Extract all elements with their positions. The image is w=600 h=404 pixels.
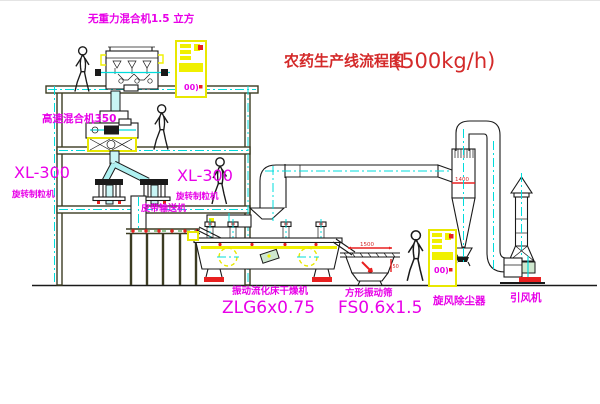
screen-dimension: 1500 [360,242,374,248]
cabinet-red-dot [199,85,203,89]
control-cabinet-top: 00) [176,41,206,97]
dryer-foot-right [312,269,332,282]
mixer-discharge [124,85,138,91]
diagram-title: 农药生产线流程图 [283,52,404,70]
belt-legs [131,234,196,285]
worker-figure-floor2 [154,105,168,150]
xl300-mid-label: XL-300 [177,166,233,185]
worker-figure-top [75,47,89,92]
mixer-downpipe [111,91,120,112]
cad-flow-diagram: 00) [0,0,600,404]
cyclone-body [452,149,475,198]
exhaust-duct [250,164,452,221]
v-chute [105,151,148,181]
cabinet-band [179,63,203,72]
dryer-foot-left [204,269,224,282]
fan-label: 引风机 [510,291,542,304]
duct-funnel [250,208,284,219]
cyclone-dust-collector: 1400 [452,121,506,272]
mixer350-frame [88,138,136,151]
cyclone-inlet-taper [438,165,452,182]
cabinet-band [432,252,453,260]
cabinet-red-lamp [198,45,203,50]
granulator-left-label: 旋转制粒机 [11,189,55,200]
control-cabinet-bottom: 00) [429,230,456,286]
top-mixer-label: 无重力混合机1.5 立方 [87,12,195,25]
dryer-label: 振动流化床干燥机 [232,285,309,297]
cabinet-mark: 00) [184,83,199,92]
dryer-yellow-stripe [201,246,337,249]
worker-figure-ground [407,231,423,281]
fan-housing [504,258,522,277]
high-speed-mixer-label: 高速混合机350 [42,112,116,125]
screen-model-label: FS0.6x1.5 [338,298,422,318]
dryer-feed-inlet [188,232,198,240]
cabinet-mark: 00) [434,266,449,275]
gravity-free-mixer [95,47,170,112]
cabinet-red-lamp [449,234,454,239]
cyclone-dimension: 1400 [455,177,469,183]
fan-base [519,277,541,283]
screen-base [352,273,388,281]
mixer350-motor [104,126,119,135]
diagram-title-capacity: (500kg/h) [393,49,495,73]
diagram-canvas: 00) [0,1,600,404]
granulator-left-unit [93,179,125,204]
granulator-mid-label: 旋转制粒机 [175,191,219,202]
vibrating-screen: 1500 50 [333,239,400,285]
induced-draft-fan [500,256,545,283]
shaft-end-left [95,69,101,76]
belt-conveyor-label: 皮带输送机 [140,202,186,214]
cyclone-label: 旋风除尘器 [432,294,486,307]
dryer-model-label: ZLG6x0.75 [222,298,315,318]
xl300-left-label: XL-300 [14,163,70,182]
mid-floor-slab [57,147,250,154]
fluid-bed-dryer [188,219,342,282]
dryer-top-rim [194,238,342,243]
cyclone-discharge-valve [456,257,469,262]
screen-height-dim: 50 [393,264,399,270]
shaft-end-right [161,69,168,76]
cabinet-red-dot [449,268,453,272]
